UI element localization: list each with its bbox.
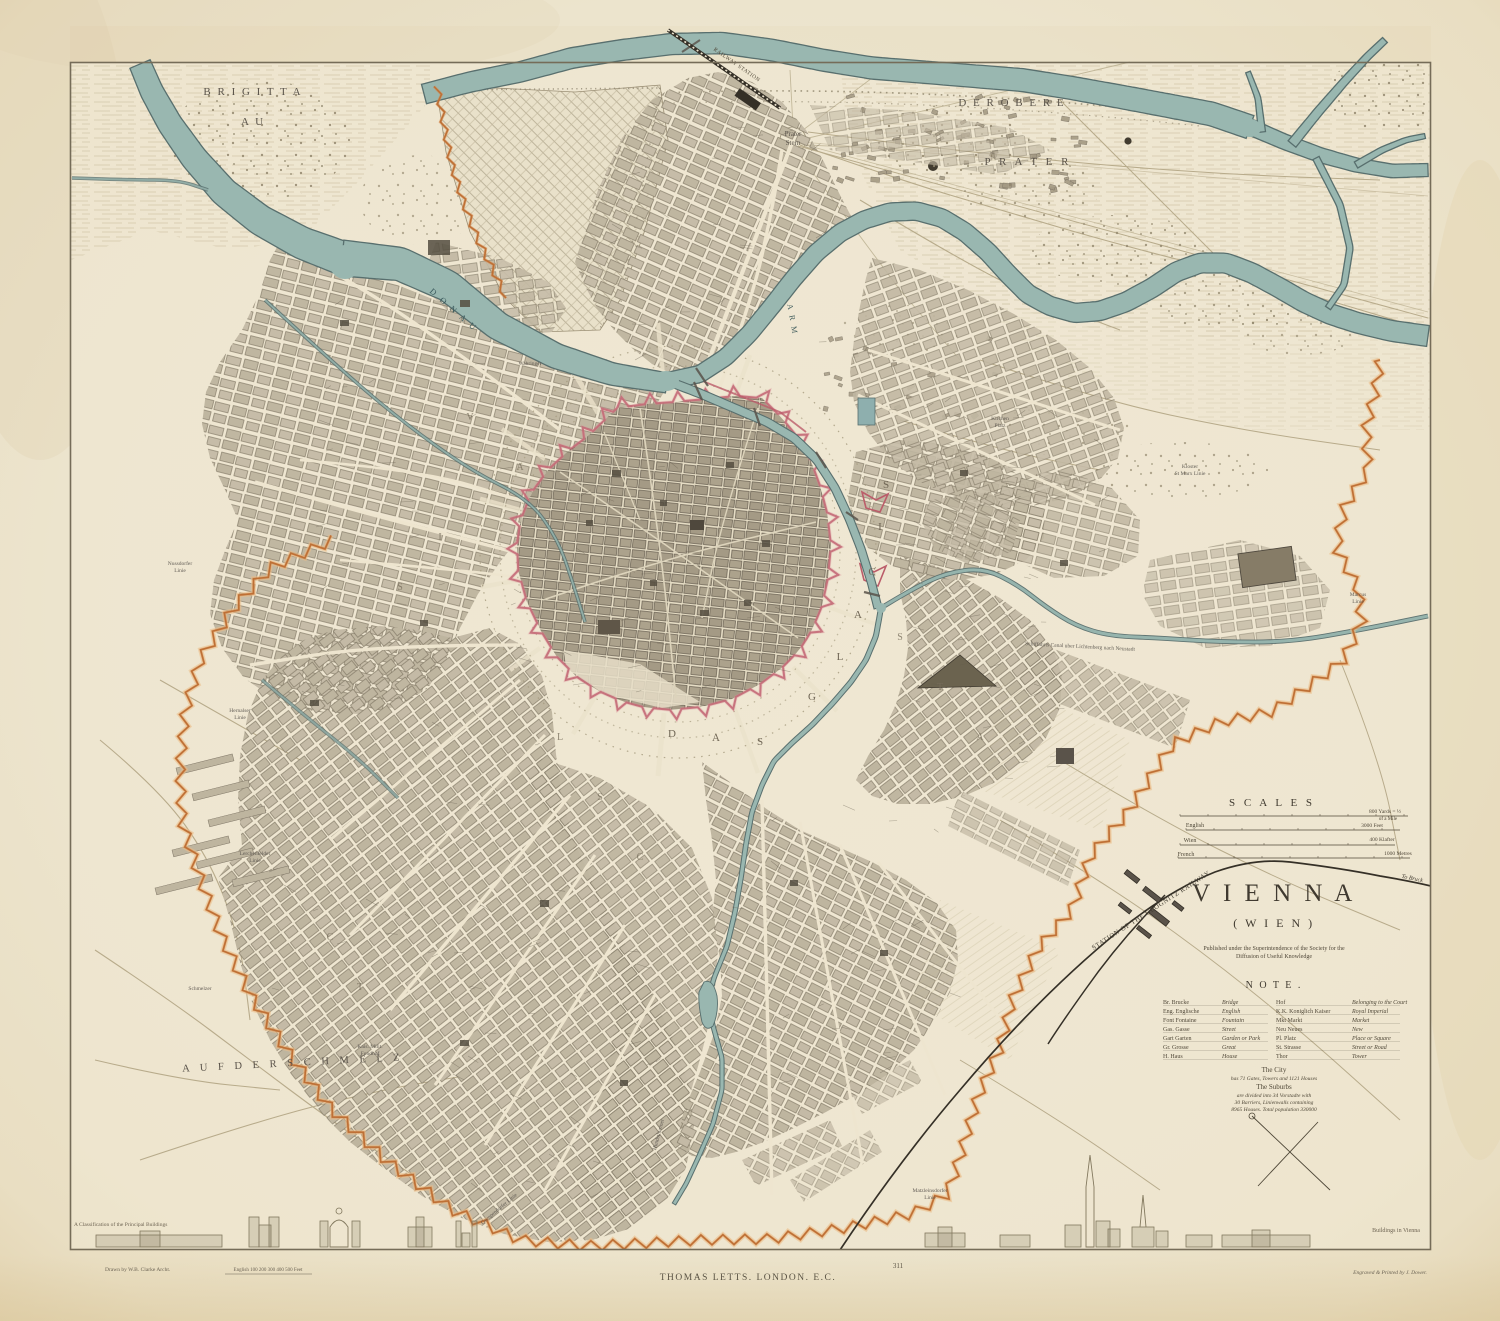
svg-text:Kirchen: Kirchen (991, 416, 1009, 422)
svg-text:Kloster: Kloster (1182, 464, 1198, 470)
svg-text:Marcus: Marcus (1350, 592, 1367, 598)
svg-text:Nussdorfer: Nussdorfer (168, 560, 193, 567)
svg-text:Schmelzer: Schmelzer (188, 986, 211, 992)
svg-text:Kais. Milit.: Kais. Milit. (357, 1044, 383, 1050)
svg-text:English 100 200 300: English 100 200 300 400 500 Feet (234, 1268, 303, 1273)
svg-text:Drawn by W.B. Clarke Archt.: Drawn by W.B. Clarke Archt. (105, 1267, 171, 1273)
svg-text:Engraved & Printed by J. Dower: Engraved & Printed by J. Dower. (1352, 1270, 1427, 1276)
svg-text:St Marx Linie: St Marx Linie (1175, 471, 1206, 477)
svg-text:Matzleinsdorfer: Matzleinsdorfer (912, 1187, 947, 1194)
svg-text:Wahringer: Wahringer (518, 361, 541, 367)
svg-text:311: 311 (893, 1262, 904, 1270)
svg-text:Linie: Linie (174, 568, 186, 574)
svg-text:Linie: Linie (249, 858, 261, 864)
svg-text:Hernalser: Hernalser (229, 708, 251, 714)
svg-text:Lerchenfelder: Lerchenfelder (240, 850, 271, 857)
svg-text:Linie: Linie (234, 715, 246, 721)
svg-text:Platz: Platz (995, 423, 1007, 429)
svg-text:Linie: Linie (924, 1195, 936, 1201)
svg-text:Linie: Linie (1352, 599, 1364, 605)
svg-text:THOMAS LETTS. LONDON. E.C.: THOMAS LETTS. LONDON. E.C. (660, 1273, 836, 1283)
svg-text:Fondhof: Fondhof (361, 1050, 380, 1057)
